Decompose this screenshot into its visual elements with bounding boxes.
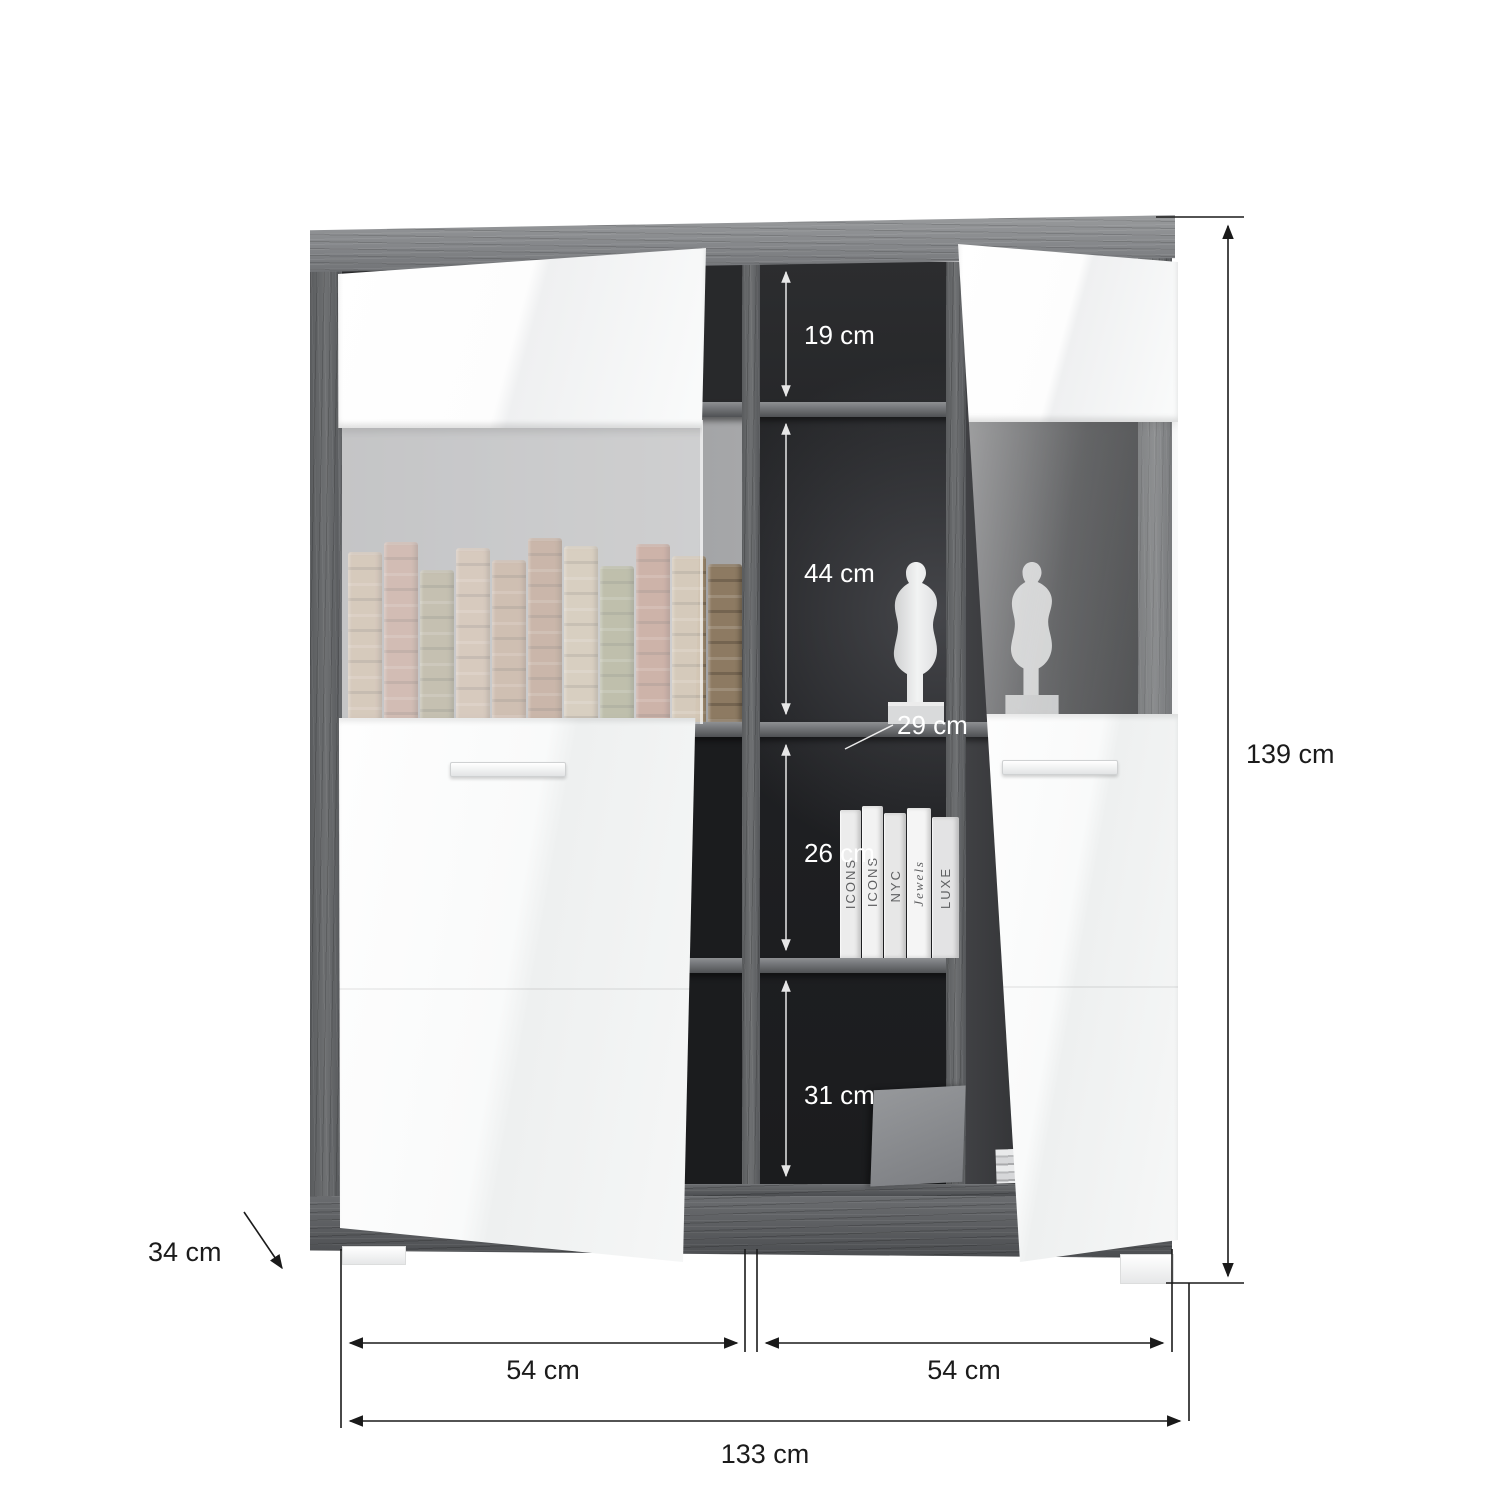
left-door-seam [338, 988, 706, 990]
book-spine: ICONS [840, 810, 861, 958]
book-title: Jewels [911, 860, 927, 907]
left-door [338, 244, 706, 1262]
dim-label-shelf-depth: 29 cm [897, 712, 968, 739]
dim-label-shelf-compartment: 26 cm [804, 840, 875, 867]
vintage-book [708, 564, 742, 722]
book-spine: ICONS [862, 806, 883, 958]
book-title: LUXE [938, 867, 953, 909]
cabinet-foot-right [1120, 1254, 1174, 1284]
cabinet-foot-left [342, 1246, 406, 1265]
left-door-bottom-panel [338, 718, 706, 1262]
dim-label-left-door-width: 54 cm [483, 1356, 603, 1384]
book-spine: NYC [884, 813, 906, 958]
product-dimension-diagram: ICONS ICONS NYC Jewels LUXE [0, 0, 1500, 1500]
folder-decor [870, 1085, 965, 1186]
left-side-panel [310, 250, 342, 1247]
left-door-handle [450, 762, 566, 777]
right-door-glass [958, 422, 1178, 714]
book-spine: Jewels [907, 808, 931, 958]
dim-label-depth: 34 cm [148, 1238, 222, 1266]
white-books: ICONS ICONS NYC Jewels LUXE [840, 806, 960, 958]
right-door-handle [1002, 760, 1118, 775]
dim-label-bottom-compartment: 31 cm [804, 1082, 875, 1109]
book-title: NYC [888, 869, 903, 902]
dim-label-top-compartment: 19 cm [804, 322, 875, 349]
dim-label-total-height: 139 cm [1246, 740, 1335, 768]
dim-label-right-door-width: 54 cm [904, 1356, 1024, 1384]
left-door-glass [338, 428, 706, 718]
torso-statue [876, 558, 956, 726]
dim-label-total-width: 133 cm [705, 1440, 825, 1468]
dim-label-display-compartment: 44 cm [804, 560, 875, 587]
divider-left [742, 262, 760, 1184]
right-door-top-panel [958, 244, 1178, 422]
book-spine: LUXE [932, 817, 959, 958]
left-door-top-panel [338, 244, 706, 428]
